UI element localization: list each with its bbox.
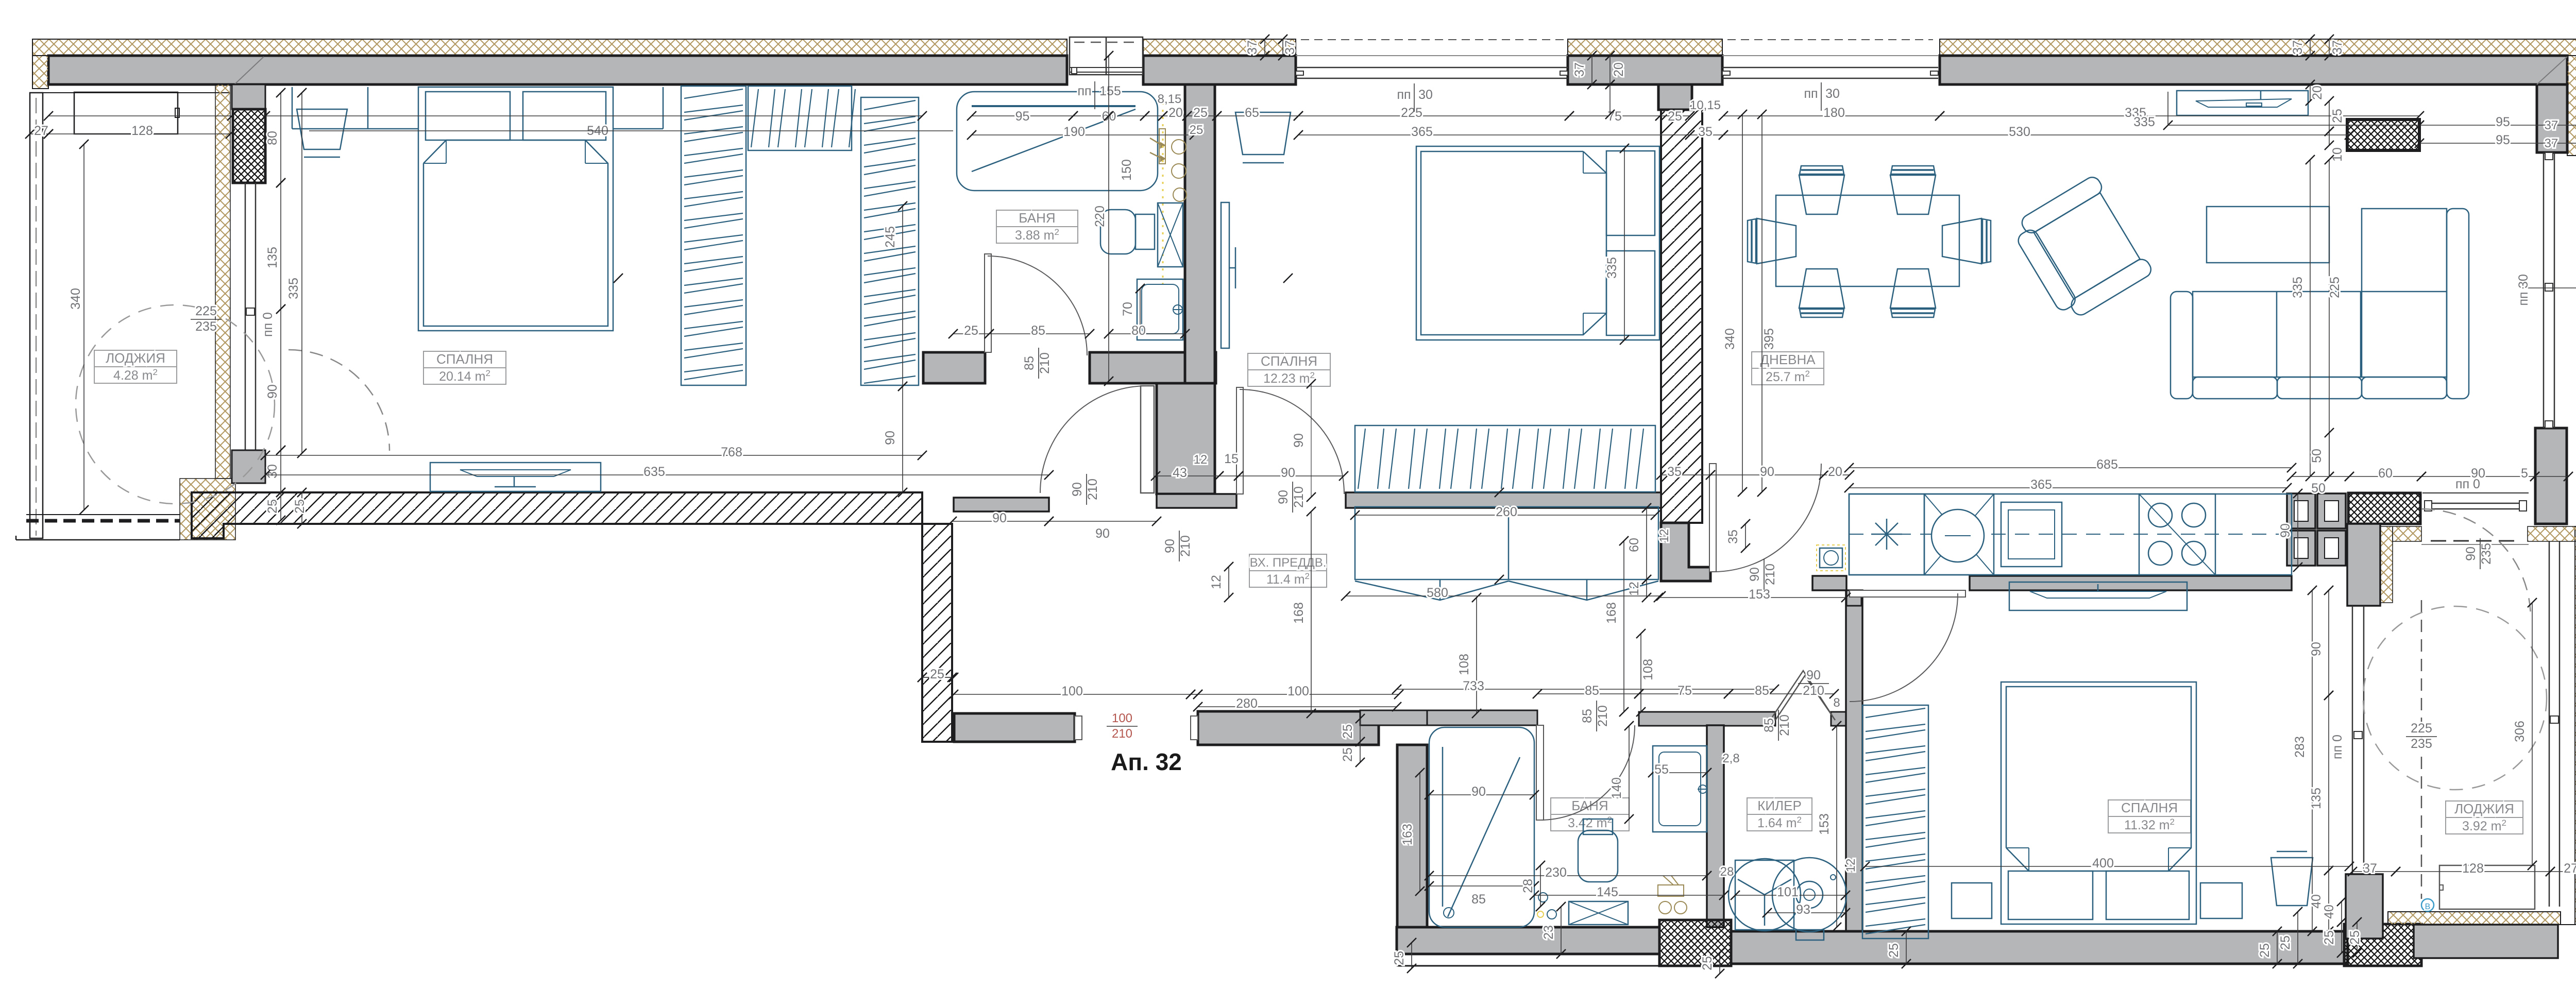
svg-text:580: 580	[1427, 586, 1448, 600]
svg-text:85: 85	[1022, 356, 1037, 370]
svg-text:340: 340	[1723, 328, 1737, 350]
svg-text:85: 85	[1755, 684, 1769, 698]
svg-text:60: 60	[1627, 538, 1641, 552]
svg-text:40: 40	[2322, 905, 2336, 919]
svg-text:пп 0: пп 0	[261, 312, 275, 337]
svg-text:260: 260	[1496, 505, 1517, 519]
svg-text:280: 280	[1236, 696, 1258, 711]
svg-text:210: 210	[1112, 727, 1132, 741]
svg-text:85: 85	[1031, 323, 1045, 338]
svg-text:283: 283	[2293, 736, 2307, 758]
svg-text:30: 30	[2516, 274, 2531, 288]
svg-text:95: 95	[1015, 109, 1030, 124]
svg-text:3.42 m2: 3.42 m2	[1568, 815, 1612, 831]
svg-text:90: 90	[1163, 539, 1177, 553]
svg-text:25: 25	[1392, 951, 1406, 965]
svg-text:235: 235	[2479, 543, 2494, 565]
svg-text:190: 190	[1063, 125, 1085, 139]
svg-text:145: 145	[1597, 885, 1618, 899]
svg-text:25.7 m2: 25.7 m2	[1766, 369, 1810, 385]
svg-text:220: 220	[1093, 206, 1107, 227]
svg-text:ЛОДЖИЯ: ЛОДЖИЯ	[2454, 801, 2514, 816]
svg-text:пп 0: пп 0	[2455, 477, 2480, 491]
svg-text:2,8: 2,8	[1722, 752, 1739, 765]
svg-text:85: 85	[1762, 718, 1776, 732]
svg-text:3.92 m2: 3.92 m2	[2462, 818, 2506, 834]
svg-text:210: 210	[1803, 684, 1824, 698]
svg-text:75: 75	[1677, 684, 1692, 698]
svg-text:153: 153	[1749, 587, 1770, 602]
svg-text:СПАЛНЯ: СПАЛНЯ	[2121, 800, 2178, 815]
svg-text:25: 25	[2258, 943, 2272, 958]
svg-text:335: 335	[1605, 257, 1619, 279]
svg-text:225: 225	[195, 304, 217, 318]
svg-text:335: 335	[286, 278, 301, 299]
svg-text:12: 12	[1657, 529, 1671, 543]
svg-text:25: 25	[1341, 724, 1355, 739]
svg-text:ЛОДЖИЯ: ЛОДЖИЯ	[106, 350, 165, 366]
svg-text:768: 768	[721, 445, 742, 459]
svg-text:23: 23	[1541, 925, 1556, 940]
svg-text:90: 90	[883, 431, 897, 445]
svg-text:35: 35	[1698, 125, 1713, 139]
svg-text:25: 25	[1887, 943, 1901, 958]
svg-text:37: 37	[1572, 62, 1587, 77]
svg-text:90: 90	[2278, 523, 2293, 538]
svg-text:40: 40	[2309, 894, 2324, 909]
svg-text:168: 168	[1292, 602, 1306, 624]
svg-text:20: 20	[2310, 86, 2325, 100]
svg-text:90: 90	[2464, 547, 2478, 561]
svg-text:30: 30	[1418, 88, 1433, 102]
svg-text:80: 80	[265, 131, 280, 145]
svg-text:пп 0: пп 0	[2330, 735, 2345, 759]
svg-text:11.4 m2: 11.4 m2	[1266, 571, 1310, 587]
svg-text:335: 335	[2291, 277, 2305, 298]
svg-text:20: 20	[1168, 106, 1183, 120]
svg-text:37: 37	[1283, 40, 1297, 55]
svg-text:8,15: 8,15	[1158, 92, 1182, 106]
svg-text:85: 85	[1471, 892, 1486, 907]
svg-text:50: 50	[2311, 481, 2326, 496]
svg-text:12: 12	[1194, 453, 1208, 467]
svg-text:25: 25	[1190, 123, 1204, 137]
svg-text:37: 37	[2545, 137, 2558, 150]
svg-text:25: 25	[2322, 930, 2336, 945]
svg-text:25: 25	[930, 667, 944, 681]
svg-text:пп: пп	[1804, 87, 1818, 101]
svg-text:108: 108	[1457, 654, 1471, 675]
svg-text:90: 90	[1281, 466, 1295, 480]
svg-text:пп: пп	[1077, 84, 1091, 98]
svg-text:25: 25	[964, 323, 978, 338]
svg-text:95: 95	[2496, 115, 2510, 129]
svg-text:12: 12	[1627, 582, 1641, 596]
svg-text:101: 101	[1777, 885, 1799, 899]
svg-text:635: 635	[643, 465, 665, 479]
svg-text:230: 230	[1545, 865, 1567, 880]
svg-text:СПАЛНЯ: СПАЛНЯ	[436, 351, 493, 367]
svg-text:ДНЕВНА: ДНЕВНА	[1760, 352, 1816, 367]
svg-text:43: 43	[1173, 466, 1187, 480]
svg-text:1.64 m2: 1.64 m2	[1757, 815, 1802, 831]
svg-text:37: 37	[2330, 40, 2345, 55]
svg-text:пп: пп	[1397, 88, 1411, 102]
svg-text:365: 365	[1411, 125, 1433, 139]
svg-text:90: 90	[1748, 567, 1762, 582]
svg-text:25: 25	[1700, 956, 1715, 970]
svg-text:225: 225	[2328, 277, 2342, 298]
svg-text:90: 90	[1292, 433, 1306, 448]
svg-text:65: 65	[1245, 106, 1259, 120]
svg-text:128: 128	[131, 124, 153, 138]
svg-text:100: 100	[1112, 711, 1132, 725]
svg-text:180: 180	[1823, 106, 1845, 120]
svg-text:11.32 m2: 11.32 m2	[2124, 817, 2175, 833]
svg-text:400: 400	[2092, 856, 2114, 871]
svg-text:245: 245	[883, 226, 897, 248]
svg-text:733: 733	[1463, 679, 1484, 693]
svg-text:335: 335	[2133, 115, 2155, 129]
svg-text:25: 25	[2330, 109, 2345, 123]
svg-text:8: 8	[1833, 696, 1840, 710]
svg-text:340: 340	[69, 288, 83, 310]
svg-text:37: 37	[2291, 40, 2305, 55]
svg-text:685: 685	[2096, 457, 2118, 472]
svg-text:80: 80	[1131, 323, 1146, 338]
svg-text:4.28 m2: 4.28 m2	[113, 367, 158, 383]
svg-text:95: 95	[2496, 133, 2510, 147]
svg-text:70: 70	[1121, 302, 1135, 316]
svg-text:235: 235	[195, 319, 217, 334]
svg-text:395: 395	[1762, 328, 1776, 350]
svg-text:168: 168	[1604, 602, 1619, 624]
svg-text:55: 55	[1654, 762, 1669, 777]
svg-text:30: 30	[1825, 87, 1840, 101]
svg-text:100: 100	[1061, 684, 1083, 698]
svg-text:150: 150	[1120, 159, 1134, 181]
svg-text:90: 90	[2309, 642, 2324, 656]
svg-text:108: 108	[1641, 659, 1655, 680]
svg-text:27: 27	[2564, 861, 2576, 876]
svg-text:153: 153	[1817, 813, 1832, 835]
svg-text:28: 28	[1720, 865, 1734, 879]
svg-text:60: 60	[2378, 466, 2393, 481]
svg-text:25: 25	[2278, 935, 2293, 950]
svg-text:210: 210	[1292, 486, 1306, 508]
svg-text:СПАЛНЯ: СПАЛНЯ	[1261, 353, 1317, 369]
svg-text:37: 37	[2363, 861, 2377, 876]
svg-text:128: 128	[2462, 861, 2484, 876]
svg-text:БАНЯ: БАНЯ	[1019, 210, 1055, 226]
svg-text:365: 365	[2030, 478, 2052, 492]
svg-text:10,15: 10,15	[1690, 98, 1721, 112]
svg-text:100: 100	[1287, 684, 1309, 698]
svg-text:90: 90	[1471, 785, 1486, 799]
svg-text:Ап. 32: Ап. 32	[1111, 748, 1182, 775]
svg-text:25: 25	[1668, 109, 1682, 124]
svg-text:135: 135	[265, 247, 280, 268]
svg-text:235: 235	[2411, 737, 2432, 751]
svg-text:3.88 m2: 3.88 m2	[1015, 227, 1059, 243]
svg-text:12: 12	[1844, 859, 1858, 873]
svg-text:B: B	[2425, 902, 2431, 911]
svg-text:163: 163	[1400, 824, 1415, 845]
svg-text:пп: пп	[2516, 292, 2531, 305]
svg-text:90: 90	[1070, 482, 1084, 497]
svg-text:КИЛЕР: КИЛЕР	[1757, 798, 1802, 813]
svg-text:12.23 m2: 12.23 m2	[1263, 370, 1315, 386]
svg-text:25: 25	[1341, 747, 1355, 762]
svg-text:90: 90	[1095, 526, 1110, 541]
svg-text:50: 50	[2310, 449, 2324, 463]
svg-text:20: 20	[1828, 465, 1842, 479]
svg-text:210: 210	[1086, 479, 1100, 500]
svg-text:155: 155	[1099, 84, 1121, 98]
svg-text:10: 10	[2330, 147, 2345, 162]
svg-text:210: 210	[1038, 352, 1052, 374]
svg-text:20: 20	[1612, 62, 1626, 77]
svg-text:90: 90	[1806, 668, 1821, 683]
svg-text:140: 140	[1609, 777, 1624, 799]
svg-text:210: 210	[1777, 714, 1792, 736]
svg-text:37: 37	[2545, 118, 2558, 132]
svg-text:210: 210	[1763, 564, 1777, 585]
svg-text:85: 85	[1580, 709, 1595, 723]
svg-text:30: 30	[265, 464, 280, 479]
svg-text:28: 28	[1521, 879, 1535, 893]
svg-text:90: 90	[265, 384, 280, 399]
svg-text:15: 15	[1224, 452, 1239, 466]
svg-text:135: 135	[2309, 788, 2324, 809]
svg-text:90: 90	[1276, 490, 1291, 504]
svg-text:225: 225	[2411, 721, 2432, 736]
svg-text:90: 90	[1760, 465, 1774, 479]
svg-text:210: 210	[1178, 535, 1193, 557]
svg-text:12: 12	[1209, 575, 1224, 589]
svg-text:25: 25	[293, 499, 307, 514]
svg-text:25: 25	[265, 499, 280, 514]
svg-text:225: 225	[1401, 106, 1422, 120]
svg-text:35: 35	[1726, 530, 1740, 544]
svg-text:35: 35	[1667, 465, 1682, 479]
svg-text:210: 210	[1596, 705, 1610, 727]
svg-text:306: 306	[2513, 721, 2527, 742]
svg-text:20.14 m2: 20.14 m2	[439, 368, 490, 384]
svg-text:37: 37	[1245, 40, 1260, 55]
svg-text:25: 25	[1193, 106, 1208, 120]
svg-text:90: 90	[992, 511, 1007, 525]
svg-text:93: 93	[1796, 902, 1810, 917]
svg-text:ВХ. ПРЕДДВ.: ВХ. ПРЕДДВ.	[1250, 556, 1327, 570]
svg-text:25: 25	[2348, 930, 2362, 945]
svg-text:530: 530	[2009, 125, 2030, 139]
svg-text:5: 5	[2521, 466, 2528, 481]
svg-text:85: 85	[1585, 684, 1599, 698]
